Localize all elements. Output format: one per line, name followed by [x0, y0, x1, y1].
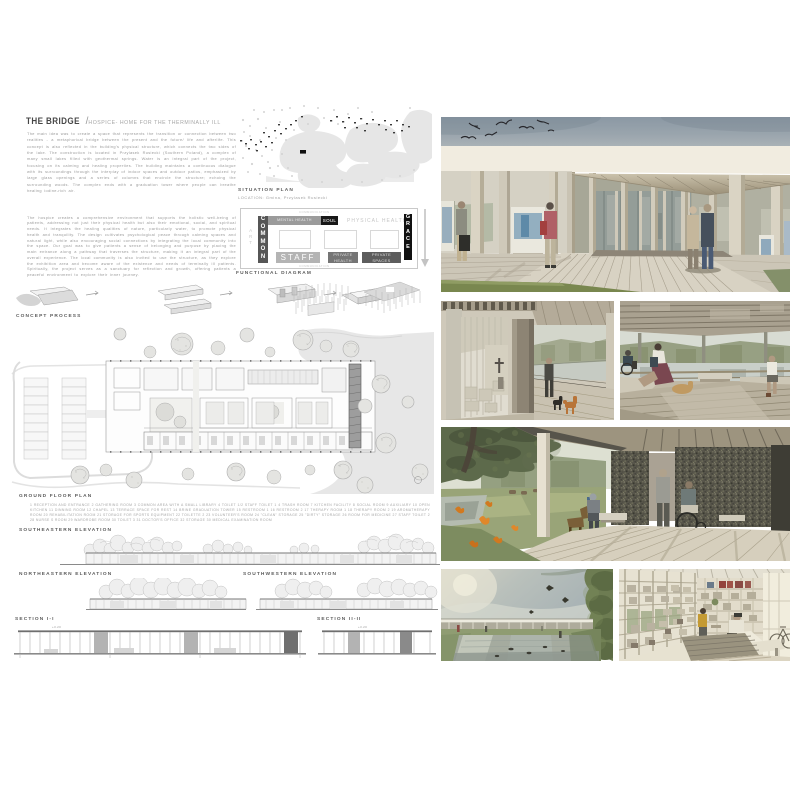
svg-text:+3.20: +3.20 [358, 625, 367, 629]
svg-text:+3.20: +3.20 [52, 625, 61, 629]
